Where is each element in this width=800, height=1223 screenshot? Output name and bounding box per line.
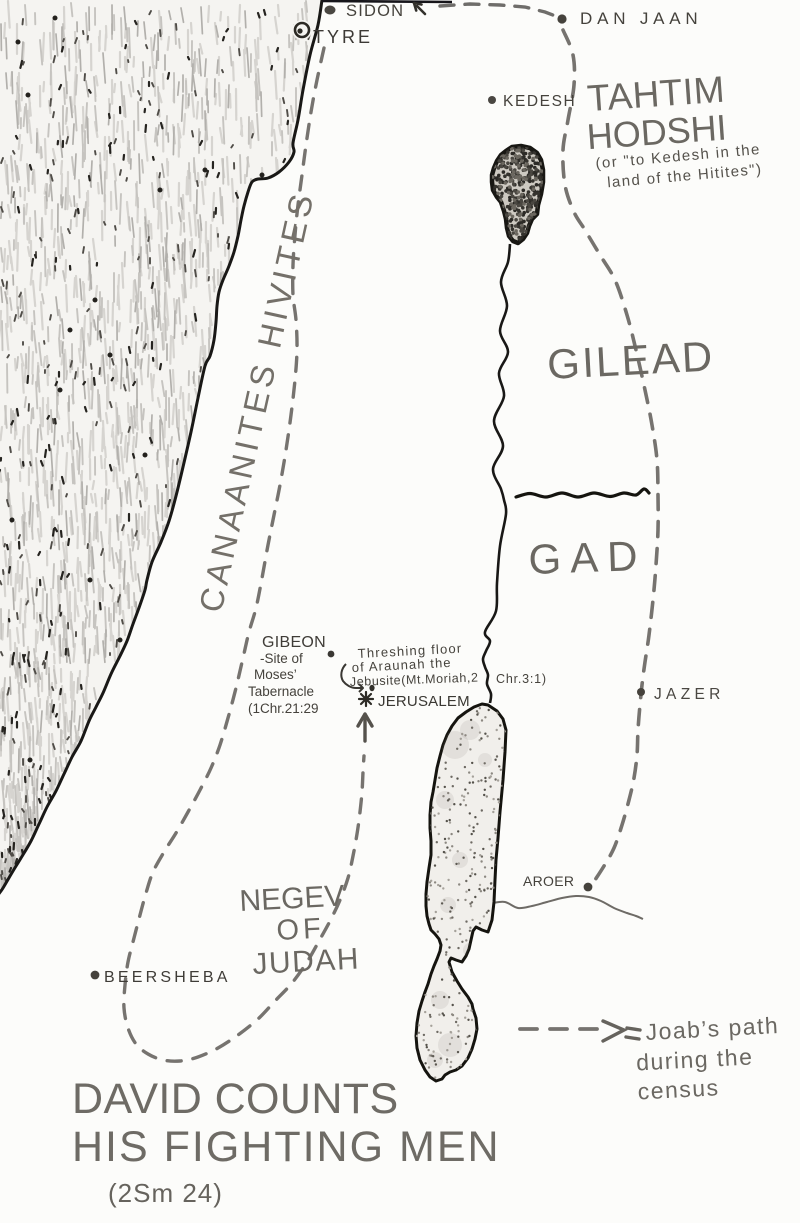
svg-text:JAZER: JAZER [654, 686, 725, 703]
svg-text:GILEAD: GILEAD [546, 332, 715, 388]
svg-text:NEGEV: NEGEV [239, 880, 346, 918]
svg-text:Tabernacle: Tabernacle [248, 684, 314, 699]
svg-text:GIBEON: GIBEON [262, 634, 326, 651]
svg-text:TYRE: TYRE [313, 27, 373, 47]
svg-text:JERUSALEM: JERUSALEM [378, 693, 470, 710]
svg-text:OF: OF [276, 913, 326, 947]
svg-text:GAD: GAD [528, 532, 648, 583]
svg-text:Moses’: Moses’ [254, 667, 297, 682]
svg-text:DAN JAAN: DAN JAAN [580, 9, 702, 28]
svg-text:(1Chr.21:29: (1Chr.21:29 [248, 701, 319, 716]
svg-text:KEDESH: KEDESH [503, 93, 576, 110]
svg-text:BEERSHEBA: BEERSHEBA [104, 969, 231, 986]
svg-text:Chr.3:1): Chr.3:1) [496, 672, 547, 686]
svg-text:HIS FIGHTING MEN: HIS FIGHTING MEN [72, 1123, 501, 1171]
svg-text:(2Sm 24): (2Sm 24) [108, 1178, 223, 1208]
svg-text:SIDON: SIDON [346, 2, 404, 20]
svg-text:DAVID COUNTS: DAVID COUNTS [72, 1075, 399, 1123]
svg-text:census: census [637, 1074, 720, 1104]
svg-text:AROER: AROER [523, 873, 574, 889]
svg-text:-Site of: -Site of [260, 651, 303, 666]
svg-text:JUDAH: JUDAH [252, 942, 361, 981]
